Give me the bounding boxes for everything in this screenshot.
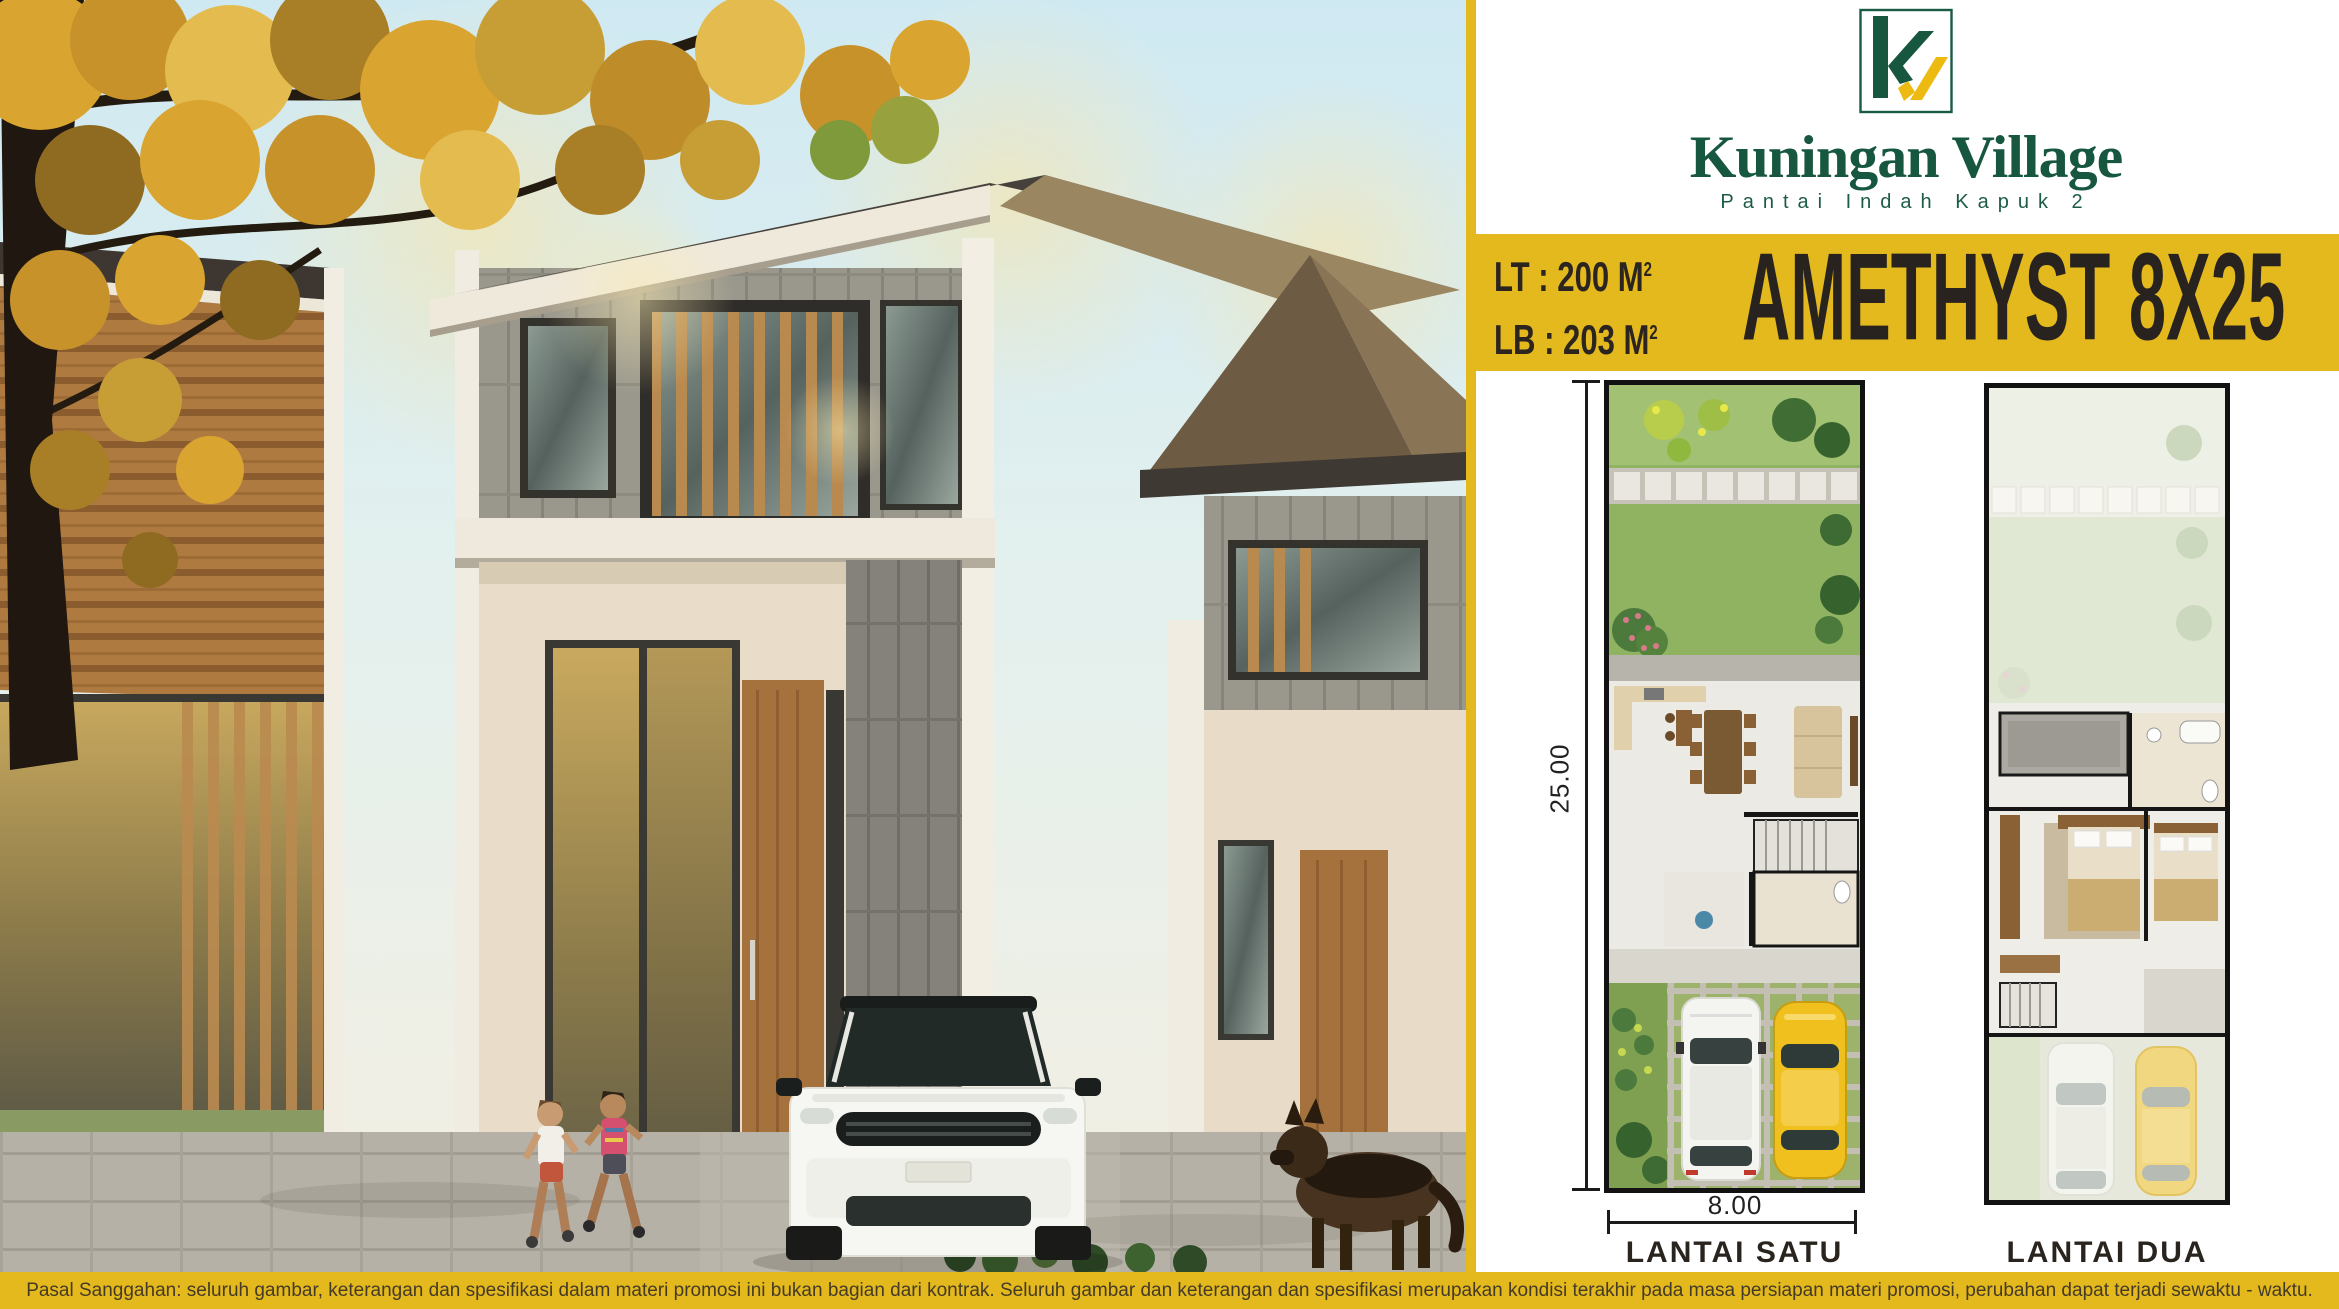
spec-banner: LT : 200 M2 LB : 203 M2 AMETHYST 8X25	[1466, 234, 2339, 371]
brand-name: Kuningan Village	[1606, 125, 2206, 189]
unit-type-title: AMETHYST 8X25	[1742, 226, 2285, 368]
depth-dimension-label: 25.00	[1545, 739, 1576, 819]
plan1-carport	[1609, 983, 1860, 1188]
building-area-line: LB : 203 M2	[1494, 305, 1658, 368]
dimension-tick	[1572, 380, 1600, 383]
plan2-bed2	[2154, 823, 2218, 921]
canopy	[455, 518, 995, 562]
paving	[0, 1132, 1466, 1272]
disclaimer-text: Pasal Sanggahan: seluruh gambar, keteran…	[0, 1272, 2339, 1309]
plan2-wardrobe	[2000, 815, 2020, 939]
plan1-white-car	[1676, 998, 1766, 1180]
floorplan1-label: LANTAI SATU	[1604, 1236, 1865, 1270]
floorplan-lantai-satu	[1604, 380, 1865, 1193]
land-area-line: LT : 200 M2	[1494, 242, 1658, 305]
depth-dimension-line	[1585, 380, 1588, 1190]
plan1-garden	[1609, 385, 1860, 658]
kv-logo-icon	[1859, 8, 1953, 114]
plan1-patio	[1609, 655, 1860, 681]
yellow-divider-strip	[1466, 0, 1476, 1272]
plan1-yellow-car	[1774, 1002, 1846, 1178]
house-render	[0, 0, 1466, 1272]
floorplan-lantai-dua	[1984, 383, 2230, 1205]
disclaimer-bar: Pasal Sanggahan: seluruh gambar, keteran…	[0, 1272, 2339, 1309]
plan1-interior	[1609, 681, 1860, 949]
plan2-faded-garden	[1988, 387, 2226, 703]
area-specs: LT : 200 M2 LB : 203 M2	[1494, 242, 1658, 368]
brochure-page: Kuningan Village Pantai Indah Kapuk 2 LT…	[0, 0, 2339, 1309]
dimension-tick	[1854, 1210, 1857, 1234]
width-dimension-label: 8.00	[1650, 1190, 1820, 1221]
plan2-faded-carport	[1988, 1037, 2226, 1201]
brand-tagline: Pantai Indah Kapuk 2	[1606, 191, 2206, 214]
plan2-white-car	[2048, 1043, 2114, 1195]
dimension-tick	[1607, 1210, 1610, 1234]
logo-block: Kuningan Village Pantai Indah Kapuk 2	[1606, 8, 2206, 214]
plan1-porch	[1609, 949, 1860, 983]
plan2-interior	[1988, 703, 2226, 1037]
plan2-master-bed	[2044, 815, 2150, 939]
dimension-tick	[1572, 1188, 1600, 1191]
plan2-yellow-car	[2136, 1047, 2196, 1195]
floorplan2-label: LANTAI DUA	[1984, 1236, 2230, 1270]
width-dimension-line	[1607, 1221, 1857, 1224]
